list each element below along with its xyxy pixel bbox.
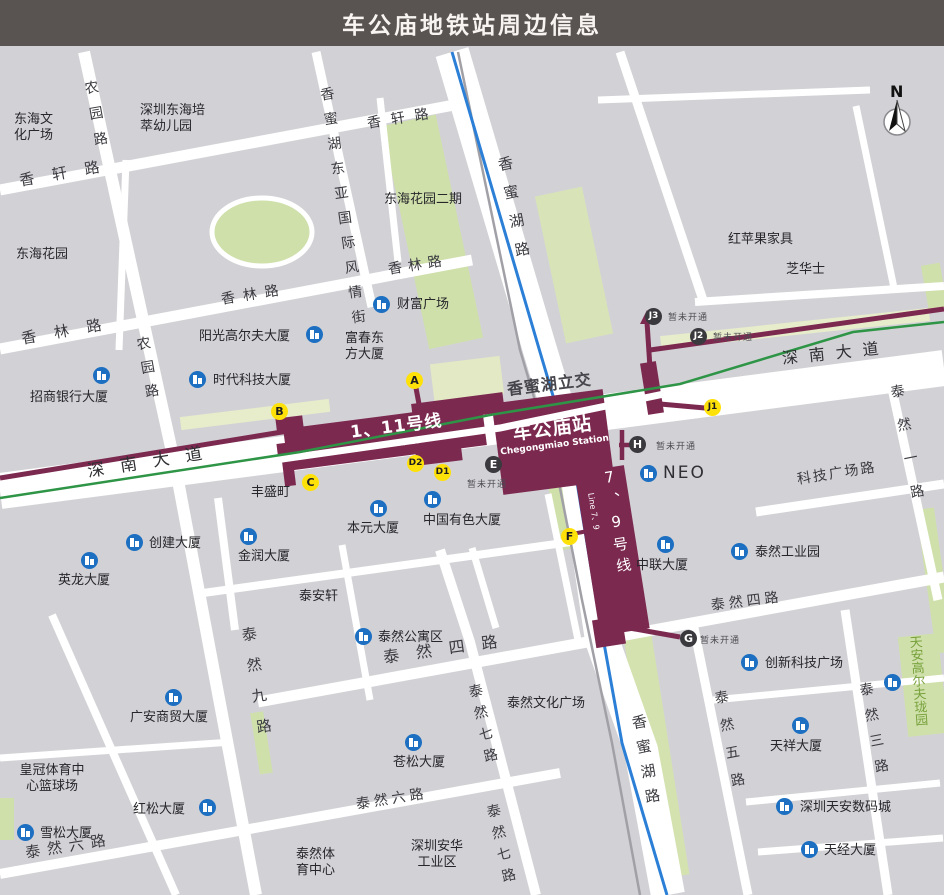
building-icon-xuesong xyxy=(17,824,34,841)
title-bar: 车公庙地铁站周边信息 xyxy=(0,0,944,46)
place-hongsong: 红松大厦 xyxy=(133,802,185,818)
building-icon-cmb xyxy=(93,367,110,384)
exit-c-badge: C xyxy=(302,474,319,491)
page-title: 车公庙地铁站周边信息 xyxy=(342,6,602,40)
place-fuchun-oriental: 富春东 方大厦 xyxy=(345,331,384,364)
building-icon-tianxiang xyxy=(792,717,809,734)
building-icon-times-tech xyxy=(189,371,206,388)
building-icon-china-nonferrous xyxy=(424,491,441,508)
place-tianxiang: 天祥大厦 xyxy=(770,739,822,755)
exit-j1-badge: J1 xyxy=(704,399,721,416)
exit-j3-status: 暂未开通 xyxy=(668,310,708,323)
exit-h-badge: H xyxy=(629,436,646,453)
place-china-nonferrous: 中国有色大厦 xyxy=(423,513,501,529)
place-innovation-tech: 创新科技广场 xyxy=(765,656,843,672)
place-anhua-industrial: 深圳安华 工业区 xyxy=(398,839,476,872)
green-edge-w xyxy=(0,798,14,840)
building-icon-hongsong xyxy=(199,799,216,816)
place-yinglong: 英龙大厦 xyxy=(58,573,110,589)
place-donghai-garden-phase2: 东海花园二期 xyxy=(384,192,462,208)
place-taianxuan: 泰安轩 xyxy=(299,589,338,605)
exit-d2-badge: D2 xyxy=(407,455,424,472)
exit-e-status: 暂未开通 xyxy=(467,477,507,490)
place-tairan-sports: 泰然体 育中心 xyxy=(296,847,335,880)
building-icon-sunshine-golf xyxy=(306,326,323,343)
place-crown-sports: 皇冠体育中 心篮球场 xyxy=(10,763,94,796)
building-icon-fortune-plaza xyxy=(373,296,390,313)
exit-h-status: 暂未开通 xyxy=(656,439,696,452)
exit-g-badge: G xyxy=(680,630,697,647)
building-icon-guangan xyxy=(165,689,182,706)
exit-a-badge: A xyxy=(406,372,423,389)
building-icon-zhonglian xyxy=(657,536,674,553)
place-neo: NEO xyxy=(663,463,706,484)
place-sunshine-golf: 阳光高尔夫大厦 xyxy=(199,329,290,345)
place-tairan-apartments: 泰然公寓区 xyxy=(378,630,443,646)
exit-j2-status: 暂未开通 xyxy=(713,330,753,343)
station-tail-south xyxy=(592,616,626,648)
place-tianjing: 天经大厦 xyxy=(824,843,876,859)
building-icon-innovation-tech xyxy=(741,654,758,671)
place-fortune-plaza: 财富广场 xyxy=(397,297,449,313)
exit-j2-badge: J2 xyxy=(690,328,707,345)
place-jinrun: 金润大厦 xyxy=(238,549,290,565)
exit-g-status: 暂未开通 xyxy=(700,633,740,646)
building-icon-tianan-golf xyxy=(884,674,901,691)
exit-j3-badge: J3 xyxy=(645,308,662,325)
place-cmb-building: 招商银行大厦 xyxy=(30,390,108,406)
building-icon-tairan-apartments xyxy=(355,628,372,645)
building-icon-yinglong xyxy=(81,552,98,569)
place-times-tech: 时代科技大厦 xyxy=(213,373,291,389)
station-spur-a xyxy=(416,388,419,404)
place-redapple-furniture: 红苹果家具 xyxy=(728,232,793,248)
metro-line-j3 xyxy=(647,322,650,368)
place-chuangjian: 创建大厦 xyxy=(149,536,201,552)
building-icon-jinrun xyxy=(240,528,257,545)
building-icon-chuangjian xyxy=(126,534,143,551)
place-benyuan: 本元大厦 xyxy=(347,521,399,537)
building-icon-tianjing xyxy=(801,841,818,858)
place-xuesong: 雪松大厦 xyxy=(40,826,92,842)
building-icon-benyuan xyxy=(370,500,387,517)
exit-e-badge: E xyxy=(485,456,502,473)
place-tairan-culture-plaza: 泰然文化广场 xyxy=(507,696,585,712)
building-icon-cangsong xyxy=(405,734,422,751)
place-donghai-garden: 东海花园 xyxy=(16,247,68,263)
exit-b-badge: B xyxy=(271,403,288,420)
compass-label: N xyxy=(890,82,903,102)
place-tairan-industrial: 泰然工业园 xyxy=(755,545,820,561)
map-stage: 车公庙地铁站周边信息 xyxy=(0,0,944,895)
place-donghai-kindergarten: 深圳东海培 萃幼儿园 xyxy=(140,103,205,136)
park-pond xyxy=(212,198,312,266)
place-tianan-digital: 深圳天安数码城 xyxy=(800,800,891,816)
building-icon-tianan-digital xyxy=(776,798,793,815)
building-icon-neo xyxy=(640,465,657,482)
place-cangsong: 苍松大厦 xyxy=(393,755,445,771)
place-guangan: 广安商贸大厦 xyxy=(130,710,208,726)
place-donghai-culture-plaza: 东海文 化广场 xyxy=(14,112,53,145)
building-icon-tairan-industrial xyxy=(731,543,748,560)
exit-d1-badge: D1 xyxy=(434,464,451,481)
place-zhonglian: 中联大厦 xyxy=(636,558,688,574)
place-chivas: 芝华士 xyxy=(786,262,825,278)
place-fengshengding: 丰盛町 xyxy=(251,485,290,501)
exit-f-badge: F xyxy=(561,528,578,545)
